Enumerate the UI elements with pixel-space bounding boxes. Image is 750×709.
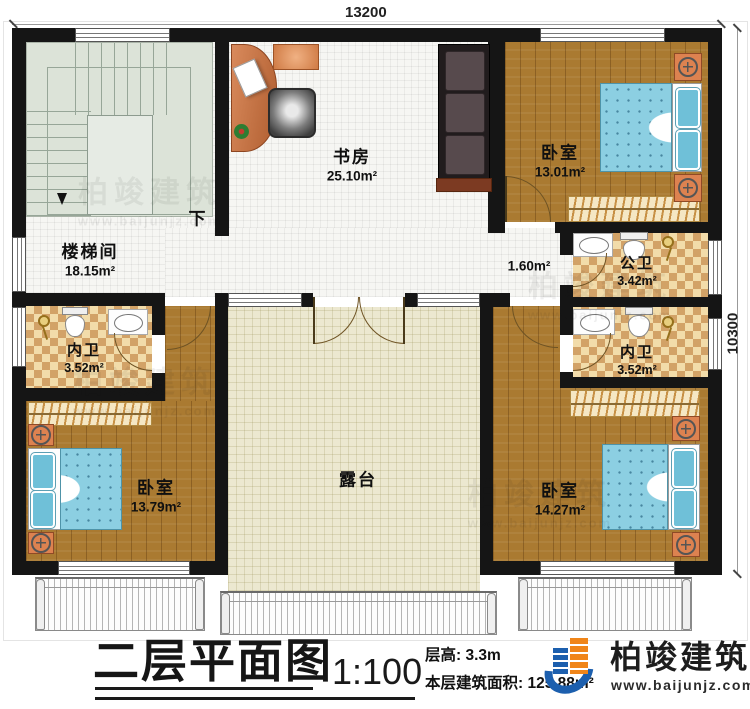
bed-pillow-TR-2 bbox=[676, 130, 700, 170]
shower-icon bbox=[662, 236, 674, 248]
room-name: 露台 bbox=[339, 466, 377, 491]
door-leaf-bedroomTR bbox=[505, 176, 507, 222]
toilet-tank-ensuiteR bbox=[625, 307, 653, 315]
nightstand-TR-1 bbox=[674, 53, 702, 81]
wall-vestibuleR-top-stub bbox=[493, 293, 510, 307]
window-left-corridor bbox=[12, 237, 26, 292]
sink-icon bbox=[579, 237, 609, 254]
sink-icon bbox=[580, 314, 610, 332]
logo-building-blue-icon bbox=[553, 648, 568, 676]
shower-icon bbox=[662, 316, 674, 328]
wall-terrace-top-pillar2 bbox=[405, 293, 417, 307]
wall-study-bedroom bbox=[488, 40, 505, 222]
shower-icon bbox=[38, 315, 50, 327]
wall-publicbath-ensuite-divider bbox=[560, 297, 708, 307]
label-hall-area: 1.60m² bbox=[508, 259, 551, 274]
window-left-ensuite bbox=[12, 307, 26, 367]
railing-post bbox=[36, 579, 45, 630]
terrace-railing bbox=[220, 591, 497, 635]
bed-mattress-BR bbox=[602, 444, 668, 530]
terrace-door-leaf-left bbox=[313, 297, 315, 344]
bed-pillow-BR-1 bbox=[672, 449, 696, 488]
wall-terrace-top-pillar1 bbox=[302, 293, 313, 307]
bedside-lamp-icon bbox=[678, 178, 698, 198]
room-name: 内卫 bbox=[617, 341, 657, 362]
title-underline-1 bbox=[95, 687, 313, 690]
brand-name: 柏竣建筑 bbox=[610, 641, 750, 673]
label-ensuite-right: 内卫 3.52m² bbox=[617, 341, 657, 377]
stair-down-arrow bbox=[57, 193, 67, 210]
sink-counter-ensuiteL bbox=[108, 309, 148, 335]
railing-post bbox=[195, 579, 204, 630]
railing-post bbox=[487, 593, 496, 634]
wardrobe-bedroomBL bbox=[28, 402, 152, 426]
toilet-tank-ensuiteL bbox=[62, 307, 88, 315]
staircase bbox=[26, 42, 213, 217]
label-terrace: 露台 bbox=[339, 466, 377, 491]
bed-pillow-BR-2 bbox=[672, 489, 696, 528]
bed-pillow-BL-2 bbox=[31, 491, 55, 528]
terrace-floor bbox=[228, 307, 480, 591]
sofa-cushion bbox=[445, 51, 485, 91]
wall-ensuiteL-bottom bbox=[12, 388, 165, 401]
bedside-lamp-icon bbox=[31, 533, 51, 553]
window-terrace-right bbox=[417, 293, 480, 307]
wall-corridor-ensuiteL bbox=[12, 293, 165, 306]
stair-landing bbox=[87, 115, 153, 215]
nightstand-BR-2 bbox=[672, 532, 700, 557]
label-ensuite-left: 内卫 3.52m² bbox=[64, 339, 104, 375]
window-right-ensuite bbox=[708, 318, 722, 370]
dimension-top: 13200 bbox=[345, 4, 387, 21]
study-sofa bbox=[438, 44, 490, 180]
window-terrace-left bbox=[228, 293, 302, 307]
window-bedroomTR-top bbox=[540, 28, 665, 42]
room-name: 内卫 bbox=[64, 339, 104, 360]
bedside-lamp-icon bbox=[676, 535, 696, 555]
label-bedroom-top-right: 卧室 13.01m² bbox=[535, 139, 585, 180]
study-desk-return bbox=[273, 44, 319, 70]
wall-ensuiteR-left-a bbox=[560, 307, 573, 335]
room-area: 3.52m² bbox=[617, 363, 657, 377]
railing-post bbox=[221, 593, 230, 634]
bed-mattress-BL bbox=[60, 448, 122, 530]
plan-scale: 1:100 bbox=[332, 654, 422, 690]
sofa-rug bbox=[436, 178, 492, 192]
room-area: 14.27m² bbox=[535, 503, 585, 518]
wall-bedroomTR-bottom-stub bbox=[488, 222, 505, 233]
label-stairwell: 楼梯间 18.15m² bbox=[62, 238, 119, 279]
sofa-cushion bbox=[445, 93, 485, 133]
room-area: 3.52m² bbox=[64, 361, 104, 375]
bedside-lamp-icon bbox=[31, 425, 51, 445]
railing-post bbox=[682, 579, 691, 630]
floor-plan-canvas: 书房 25.10m² 卧室 13.01m² 楼梯间 18.15m² 下 1.60… bbox=[0, 0, 750, 709]
brand-logo bbox=[543, 636, 605, 696]
window-right-publicbath bbox=[708, 240, 722, 295]
nightstand-TR-2 bbox=[674, 174, 702, 202]
logo-building-orange-icon bbox=[570, 638, 588, 674]
nightstand-BL-1 bbox=[28, 424, 54, 446]
label-bedroom-bottom-left: 卧室 13.79m² bbox=[131, 474, 181, 515]
wall-ensuiteR-bottom bbox=[560, 377, 708, 388]
room-area: 13.01m² bbox=[535, 165, 585, 180]
brand-website: www.baijunjz.com bbox=[611, 678, 750, 692]
room-name: 卧室 bbox=[535, 477, 585, 502]
room-name: 公卫 bbox=[617, 252, 657, 273]
wall-terrace-left bbox=[215, 293, 228, 575]
dimension-top-line bbox=[12, 24, 722, 25]
logo-swoosh-icon bbox=[535, 636, 603, 703]
wall-right bbox=[708, 28, 722, 575]
wall-publicbath-left-a bbox=[560, 233, 573, 255]
dimension-right-line bbox=[737, 28, 738, 575]
toilet-tank-publicbath bbox=[620, 232, 648, 240]
bedside-lamp-icon bbox=[678, 57, 698, 77]
label-study: 书房 25.10m² bbox=[327, 143, 377, 184]
nightstand-BR-1 bbox=[672, 416, 700, 441]
wall-terrace-right bbox=[480, 293, 493, 575]
balcony-railing-left bbox=[35, 577, 205, 631]
wall-ensuiteL-right-a bbox=[152, 293, 165, 335]
room-area: 25.10m² bbox=[327, 169, 377, 184]
window-bedroomBL-bottom bbox=[58, 561, 190, 575]
office-chair bbox=[268, 88, 316, 138]
bed-mattress-TR bbox=[600, 83, 672, 172]
title-underline-2 bbox=[95, 697, 415, 700]
sink-counter-ensuiteR bbox=[573, 309, 615, 335]
railing-post bbox=[519, 579, 528, 630]
window-stairwell-top bbox=[75, 28, 170, 42]
stair-down-label: 下 bbox=[189, 205, 206, 230]
label-public-bath: 公卫 3.42m² bbox=[617, 252, 657, 288]
room-name: 楼梯间 bbox=[62, 238, 119, 263]
bed-pillow-BL-1 bbox=[31, 453, 55, 490]
room-name: 卧室 bbox=[131, 474, 181, 499]
room-name: 书房 bbox=[327, 143, 377, 168]
nightstand-BL-2 bbox=[28, 532, 54, 554]
wall-stairwell-right bbox=[215, 28, 229, 236]
sofa-cushion bbox=[445, 135, 485, 175]
bed-pillow-TR-1 bbox=[676, 88, 700, 128]
page-title: 二层平面图 bbox=[93, 638, 333, 684]
window-bedroomBR-bottom bbox=[540, 561, 675, 575]
floor-height: 层高: 3.3m bbox=[425, 648, 501, 664]
bedside-lamp-icon bbox=[676, 419, 696, 439]
wardrobe-bedroomBR bbox=[570, 390, 700, 417]
plant-icon bbox=[234, 124, 249, 139]
room-name: 卧室 bbox=[535, 139, 585, 164]
dimension-right: 10300 bbox=[724, 313, 741, 355]
room-area: 18.15m² bbox=[62, 264, 119, 279]
room-area: 13.79m² bbox=[131, 500, 181, 515]
terrace-door-leaf-right bbox=[403, 297, 405, 344]
label-bedroom-bottom-right: 卧室 14.27m² bbox=[535, 477, 585, 518]
sink-icon bbox=[114, 314, 143, 332]
balcony-railing-right bbox=[518, 577, 692, 631]
room-area: 3.42m² bbox=[617, 274, 657, 288]
